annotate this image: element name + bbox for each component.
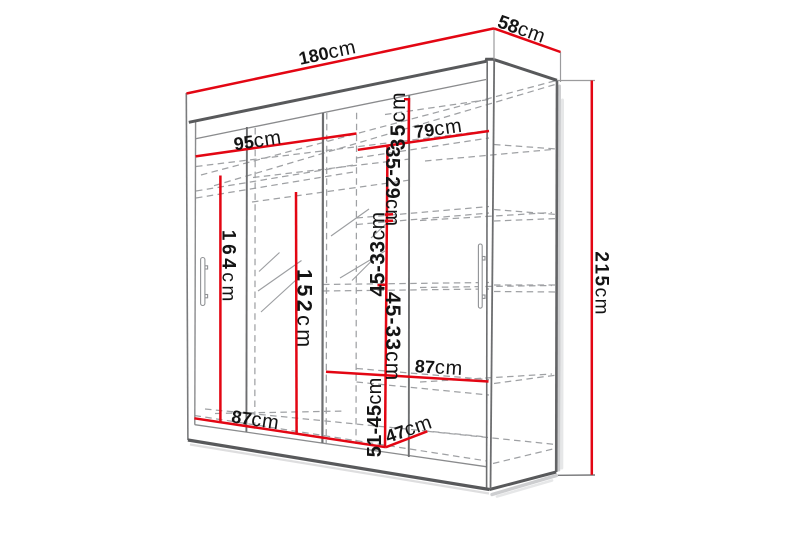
svg-text:35cm: 35cm — [387, 90, 410, 150]
svg-text:45-33cm: 45-33cm — [381, 292, 404, 381]
svg-text:215cm: 215cm — [590, 251, 611, 316]
svg-text:51-45cm: 51-45cm — [364, 377, 386, 457]
svg-text:95cm: 95cm — [232, 126, 283, 155]
svg-text:152cm: 152cm — [293, 269, 317, 351]
svg-text:58cm: 58cm — [495, 11, 549, 48]
svg-text:79cm: 79cm — [413, 115, 464, 144]
svg-text:164cm: 164cm — [218, 230, 239, 305]
svg-text:45-33cm: 45-33cm — [366, 211, 389, 296]
svg-text:87cm: 87cm — [414, 355, 464, 380]
svg-text:87cm: 87cm — [230, 405, 281, 434]
